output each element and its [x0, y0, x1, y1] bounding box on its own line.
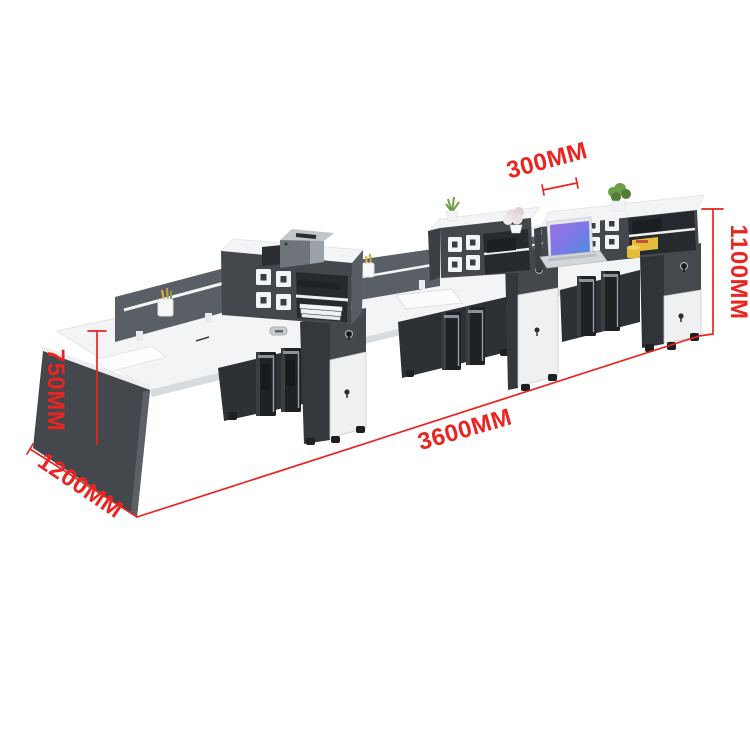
pc-tower — [281, 348, 301, 412]
pc-tower — [601, 271, 620, 331]
pc-tower — [466, 307, 485, 365]
end-cabinet — [640, 243, 701, 352]
product-dimension-diagram: 300MM 1100MM 750MM 1200MM 3600MM — [0, 0, 750, 750]
storage-hutch-1 — [221, 229, 363, 325]
pc-tower — [442, 312, 461, 370]
dim-total-height: 1100MM — [699, 209, 750, 336]
screen-bracket — [205, 313, 212, 323]
pen-cup — [362, 254, 374, 277]
dim-label-desk-height: 750MM — [42, 349, 69, 432]
screen-bracket — [136, 331, 143, 341]
mug — [627, 245, 640, 258]
pc-tower — [577, 276, 596, 336]
cable-grommet — [270, 327, 287, 335]
open-shelves — [483, 229, 530, 274]
dim-label-hutch-depth: 300MM — [504, 137, 591, 184]
storage-hutch-2 — [428, 197, 540, 281]
workstation-scene: 300MM 1100MM 750MM 1200MM 3600MM — [0, 0, 750, 750]
dim-label-total-height: 1100MM — [725, 224, 750, 319]
open-shelves — [296, 272, 348, 322]
pc-tower — [256, 352, 276, 416]
mobile-pedestal — [300, 308, 366, 445]
dim-hutch-depth: 300MM — [504, 137, 591, 195]
